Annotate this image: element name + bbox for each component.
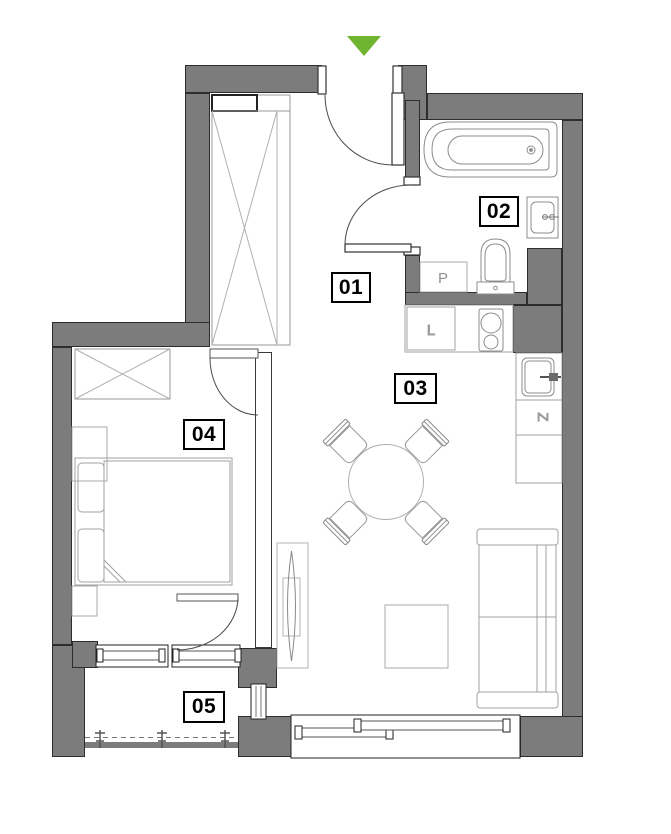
floor-plan: P L Z [0, 0, 671, 834]
nightstand-bottom [72, 586, 97, 616]
bedroom-door-swing [210, 358, 258, 415]
bed-frame [75, 458, 232, 585]
tv-screen [288, 551, 296, 661]
dining-chair-nw [323, 419, 370, 466]
plan-drawing: P L Z [0, 0, 671, 834]
sofa-body [479, 545, 556, 692]
kitchen-counter: L [405, 305, 513, 352]
bathroom-jamb-top [404, 177, 420, 185]
room-label-03: 03 [394, 373, 437, 404]
dining-table [349, 445, 424, 520]
bed [75, 458, 232, 585]
entrance-jamb-right [393, 66, 402, 94]
balcony-door-leaf [177, 594, 238, 601]
bathroom-door-leaf [345, 244, 411, 252]
bathroom-door [345, 177, 420, 255]
sofa-armrest-bottom [477, 692, 558, 708]
dining-set [323, 419, 449, 545]
entrance-door-swing [325, 95, 392, 165]
entrance-jamb-left [318, 66, 326, 94]
fridge-label: L [427, 322, 435, 339]
stove-burner-small [484, 335, 498, 349]
dining-chair-sw [323, 498, 370, 545]
room-label-05: 05 [183, 691, 225, 723]
room-label-01: 01 [331, 272, 371, 303]
bed-mattress [104, 461, 230, 582]
stove-burner-large [481, 313, 501, 333]
entrance-marker-icon [347, 36, 381, 56]
wardrobe-top-shelf [212, 95, 257, 111]
bed-pillow-1 [78, 463, 104, 512]
dining-chair-ne [402, 419, 449, 466]
living-room-window [291, 715, 520, 758]
balcony-door [177, 594, 238, 650]
room-label-02: 02 [479, 196, 519, 227]
entrance-door [318, 66, 404, 165]
toilet-tank [477, 282, 514, 294]
bathroom-sink [527, 197, 559, 238]
balcony-railing [85, 730, 238, 748]
bathtub [424, 122, 557, 177]
kitchen-cabinets: Z [516, 353, 562, 483]
tv-unit [277, 543, 308, 668]
toilet [477, 239, 514, 294]
bed-blanket-fold [104, 560, 126, 582]
bedroom-door-threshold [210, 349, 258, 358]
sofa-armrest-top [477, 529, 558, 545]
bedroom-door [210, 349, 258, 415]
balcony-door-swing [177, 597, 238, 650]
wardrobe-outline [212, 95, 290, 345]
coffee-table [385, 605, 448, 668]
stove [479, 309, 503, 351]
room-label-04: 04 [183, 419, 225, 450]
dishwasher-label: Z [534, 412, 551, 421]
nightstand-top [72, 427, 107, 481]
bed-pillow-2 [78, 529, 104, 582]
bathtub-basin [448, 136, 543, 164]
washing-machine-label: P [438, 270, 448, 287]
hallway-wardrobe [212, 95, 290, 345]
sofa [477, 529, 558, 708]
entrance-door-leaf [392, 93, 404, 165]
bedroom-windows [96, 645, 241, 667]
washing-machine: P [420, 262, 467, 292]
bathroom-door-swing [345, 185, 410, 244]
bedroom-wardrobe [75, 349, 170, 399]
niche-window [251, 684, 266, 719]
dining-chair-se [402, 498, 449, 545]
